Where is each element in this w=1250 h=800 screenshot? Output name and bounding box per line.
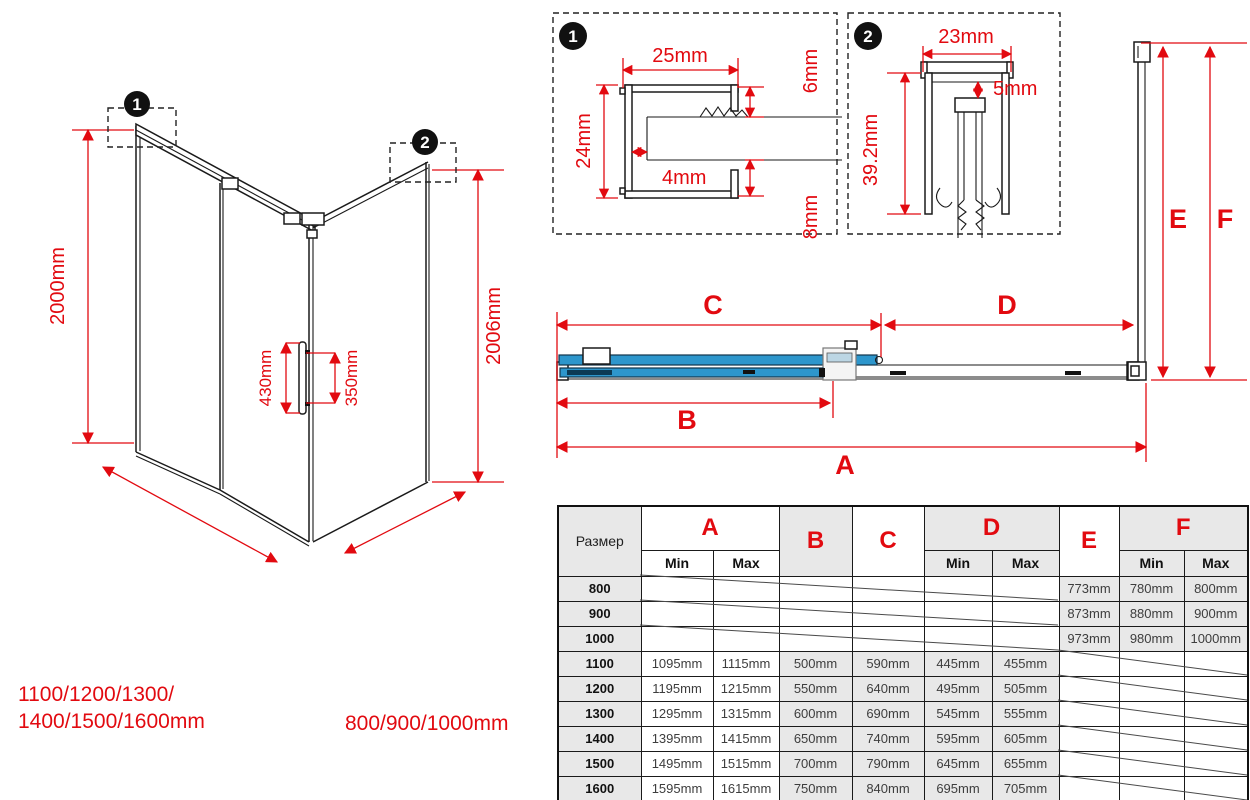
table-cell bbox=[1184, 701, 1248, 726]
table-cell: 700mm bbox=[779, 751, 852, 776]
clip-left bbox=[937, 188, 953, 207]
row-size-label: 1100 bbox=[558, 651, 641, 676]
dim-profile2-height: 39.2mm bbox=[860, 114, 882, 186]
table-cell bbox=[713, 576, 779, 601]
table-cell bbox=[1059, 676, 1119, 701]
size-row-1100: 11001095mm1115mm500mm590mm445mm455mm bbox=[558, 651, 1248, 676]
table-cell: 1615mm bbox=[713, 776, 779, 800]
header-a-min: Min bbox=[641, 550, 713, 576]
bottom-seal-right bbox=[976, 200, 984, 230]
table-cell: 705mm bbox=[992, 776, 1059, 800]
table-cell bbox=[713, 601, 779, 626]
table-cell: 1115mm bbox=[713, 651, 779, 676]
header-size: Размер bbox=[558, 506, 641, 576]
header-a: A bbox=[641, 506, 779, 550]
clip-right bbox=[985, 188, 1001, 207]
row-size-label: 1600 bbox=[558, 776, 641, 800]
dim-height-left: 2000mm bbox=[47, 247, 69, 325]
dim-letter-f: F bbox=[1217, 204, 1234, 234]
callout-1-number: 1 bbox=[132, 95, 141, 114]
size-row-800: 800773mm780mm800mm bbox=[558, 576, 1248, 601]
roller-left bbox=[583, 348, 610, 364]
row-size-label: 1400 bbox=[558, 726, 641, 751]
table-cell: 780mm bbox=[1119, 576, 1184, 601]
table-cell: 1395mm bbox=[641, 726, 713, 751]
size-row-1500: 15001495mm1515mm700mm790mm645mm655mm bbox=[558, 751, 1248, 776]
width-options-line2: 1400/1500/1600mm bbox=[18, 710, 205, 733]
dim-profile2-width: 23mm bbox=[938, 26, 994, 48]
size-row-1400: 14001395mm1415mm650mm740mm595mm605mm bbox=[558, 726, 1248, 751]
header-d: D bbox=[924, 506, 1059, 550]
detail-1-wall-profile-section: 1 25mm 24mm 4mm bbox=[550, 10, 845, 240]
table-cell: 605mm bbox=[992, 726, 1059, 751]
table-cell bbox=[779, 626, 852, 651]
table-cell: 840mm bbox=[852, 776, 924, 800]
enclosure-outline bbox=[136, 124, 429, 546]
table-cell: 600mm bbox=[779, 701, 852, 726]
table-cell bbox=[852, 601, 924, 626]
header-f-max: Max bbox=[1184, 550, 1248, 576]
header-b: B bbox=[779, 506, 852, 576]
table-cell: 655mm bbox=[992, 751, 1059, 776]
dim-profile2-gap: 5mm bbox=[993, 78, 1037, 100]
row-size-label: 1000 bbox=[558, 626, 641, 651]
side-panel-elevation bbox=[1128, 42, 1150, 380]
table-cell bbox=[641, 601, 713, 626]
table-cell bbox=[924, 601, 992, 626]
glass-clip bbox=[700, 107, 748, 117]
table-cell: 695mm bbox=[924, 776, 992, 800]
size-table-section: Размер A B C D E F Min Max Min Max Min M… bbox=[557, 505, 1249, 800]
dim-profile1-top-lip: 6mm bbox=[800, 49, 822, 93]
table-cell: 790mm bbox=[852, 751, 924, 776]
detail-2-number: 2 bbox=[863, 27, 872, 46]
table-cell bbox=[1184, 751, 1248, 776]
table-cell bbox=[1059, 701, 1119, 726]
table-cell: 1595mm bbox=[641, 776, 713, 800]
table-cell bbox=[852, 576, 924, 601]
header-e: E bbox=[1059, 506, 1119, 576]
table-cell: 590mm bbox=[852, 651, 924, 676]
table-cell: 1415mm bbox=[713, 726, 779, 751]
roller-bracket-left bbox=[222, 178, 238, 189]
table-cell: 740mm bbox=[852, 726, 924, 751]
table-cell: 650mm bbox=[779, 726, 852, 751]
table-cell bbox=[1184, 726, 1248, 751]
table-cell bbox=[1184, 776, 1248, 800]
table-cell: 495mm bbox=[924, 676, 992, 701]
shower-enclosure-technical-drawing: 2000mm 2006mm 430mm 350mm 1100/1200/1300… bbox=[0, 0, 1250, 800]
row-size-label: 1500 bbox=[558, 751, 641, 776]
table-cell bbox=[1119, 676, 1184, 701]
table-cell: 1495mm bbox=[641, 751, 713, 776]
table-cell bbox=[992, 626, 1059, 651]
table-cell: 880mm bbox=[1119, 601, 1184, 626]
table-cell: 980mm bbox=[1119, 626, 1184, 651]
table-cell: 750mm bbox=[779, 776, 852, 800]
row-size-label: 1200 bbox=[558, 676, 641, 701]
detail-2-glass-clamp-section: 2 23mm 39.2mm bbox=[845, 10, 1065, 240]
table-cell bbox=[924, 576, 992, 601]
size-table-header: Размер A B C D E F Min Max Min Max Min M… bbox=[558, 506, 1248, 576]
table-cell bbox=[713, 626, 779, 651]
table-cell: 445mm bbox=[924, 651, 992, 676]
wall-profile-top bbox=[1134, 42, 1150, 62]
table-cell: 1315mm bbox=[713, 701, 779, 726]
size-row-900: 900873mm880mm900mm bbox=[558, 601, 1248, 626]
size-row-1600: 16001595mm1615mm750mm840mm695mm705mm bbox=[558, 776, 1248, 800]
iso-dimensions: 2000mm 2006mm 430mm 350mm 1100/1200/1300… bbox=[18, 130, 508, 735]
dim-profile1-width: 25mm bbox=[652, 45, 708, 67]
dim-handle-length: 430mm bbox=[256, 350, 275, 407]
table-cell bbox=[641, 576, 713, 601]
table-cell bbox=[1184, 651, 1248, 676]
table-cell: 555mm bbox=[992, 701, 1059, 726]
table-cell: 595mm bbox=[924, 726, 992, 751]
header-f-min: Min bbox=[1119, 550, 1184, 576]
table-cell bbox=[1119, 751, 1184, 776]
callout-2: 2 bbox=[390, 129, 456, 182]
glass-holder bbox=[955, 98, 985, 112]
table-cell: 505mm bbox=[992, 676, 1059, 701]
table-cell bbox=[992, 601, 1059, 626]
table-cell: 1195mm bbox=[641, 676, 713, 701]
isometric-view: 2000mm 2006mm 430mm 350mm 1100/1200/1300… bbox=[0, 80, 560, 800]
table-cell: 640mm bbox=[852, 676, 924, 701]
table-cell bbox=[1059, 776, 1119, 800]
table-cell: 550mm bbox=[779, 676, 852, 701]
row-size-label: 1300 bbox=[558, 701, 641, 726]
dim-letter-e: E bbox=[1169, 204, 1187, 234]
table-cell: 873mm bbox=[1059, 601, 1119, 626]
detail-1-dimensions: 25mm 24mm 4mm 6mm 8mm bbox=[573, 45, 822, 239]
roller-bracket-right bbox=[284, 213, 300, 224]
dim-height-right: 2006mm bbox=[483, 287, 505, 365]
table-cell bbox=[1119, 776, 1184, 800]
table-cell: 973mm bbox=[1059, 626, 1119, 651]
table-cell bbox=[924, 626, 992, 651]
size-row-1000: 1000973mm980mm1000mm bbox=[558, 626, 1248, 651]
table-cell: 1515mm bbox=[713, 751, 779, 776]
size-row-1200: 12001195mm1215mm550mm640mm495mm505mm bbox=[558, 676, 1248, 701]
table-cell: 545mm bbox=[924, 701, 992, 726]
header-d-min: Min bbox=[924, 550, 992, 576]
table-cell bbox=[779, 576, 852, 601]
table-cell bbox=[1059, 651, 1119, 676]
table-cell bbox=[1119, 726, 1184, 751]
table-cell bbox=[1059, 751, 1119, 776]
dim-profile1-bottom-lip: 8mm bbox=[800, 195, 822, 239]
table-cell: 1295mm bbox=[641, 701, 713, 726]
table-cell: 1095mm bbox=[641, 651, 713, 676]
dim-letter-b: B bbox=[677, 405, 697, 435]
track-assembly bbox=[557, 341, 1139, 380]
size-row-1300: 13001295mm1315mm600mm690mm545mm555mm bbox=[558, 701, 1248, 726]
dim-letter-c: C bbox=[703, 290, 723, 320]
profile-1-outline bbox=[620, 85, 842, 198]
detail-1-number: 1 bbox=[568, 27, 577, 46]
table-cell: 645mm bbox=[924, 751, 992, 776]
table-cell: 800mm bbox=[1184, 576, 1248, 601]
dim-letter-a: A bbox=[835, 450, 855, 480]
dim-handle-holes: 350mm bbox=[342, 350, 361, 407]
table-cell: 1000mm bbox=[1184, 626, 1248, 651]
dim-profile1-height: 24mm bbox=[573, 113, 595, 169]
table-cell bbox=[1119, 701, 1184, 726]
size-table-body: 800773mm780mm800mm900873mm880mm900mm1000… bbox=[558, 576, 1248, 800]
table-cell: 773mm bbox=[1059, 576, 1119, 601]
table-cell: 1215mm bbox=[713, 676, 779, 701]
table-cell: 455mm bbox=[992, 651, 1059, 676]
dim-profile1-slot: 4mm bbox=[662, 167, 706, 189]
bottom-seal-left bbox=[958, 200, 966, 230]
table-cell bbox=[852, 626, 924, 651]
width-options-line1: 1100/1200/1300/ bbox=[18, 683, 174, 706]
row-size-label: 900 bbox=[558, 601, 641, 626]
dim-letter-d: D bbox=[997, 290, 1017, 320]
table-cell: 690mm bbox=[852, 701, 924, 726]
table-cell bbox=[1184, 676, 1248, 701]
row-size-label: 800 bbox=[558, 576, 641, 601]
header-a-max: Max bbox=[713, 550, 779, 576]
table-cell bbox=[1059, 726, 1119, 751]
size-table: Размер A B C D E F Min Max Min Max Min M… bbox=[557, 505, 1249, 800]
table-cell bbox=[1119, 651, 1184, 676]
table-cell bbox=[992, 576, 1059, 601]
header-f: F bbox=[1119, 506, 1248, 550]
detail-2-dimensions: 23mm 39.2mm 5mm bbox=[860, 26, 1037, 214]
callout-2-number: 2 bbox=[420, 133, 429, 152]
table-cell: 900mm bbox=[1184, 601, 1248, 626]
header-d-max: Max bbox=[992, 550, 1059, 576]
depth-options: 800/900/1000mm bbox=[345, 712, 508, 735]
corner-bracket bbox=[302, 213, 324, 225]
table-cell bbox=[779, 601, 852, 626]
table-cell: 500mm bbox=[779, 651, 852, 676]
table-cell bbox=[641, 626, 713, 651]
header-c: C bbox=[852, 506, 924, 576]
